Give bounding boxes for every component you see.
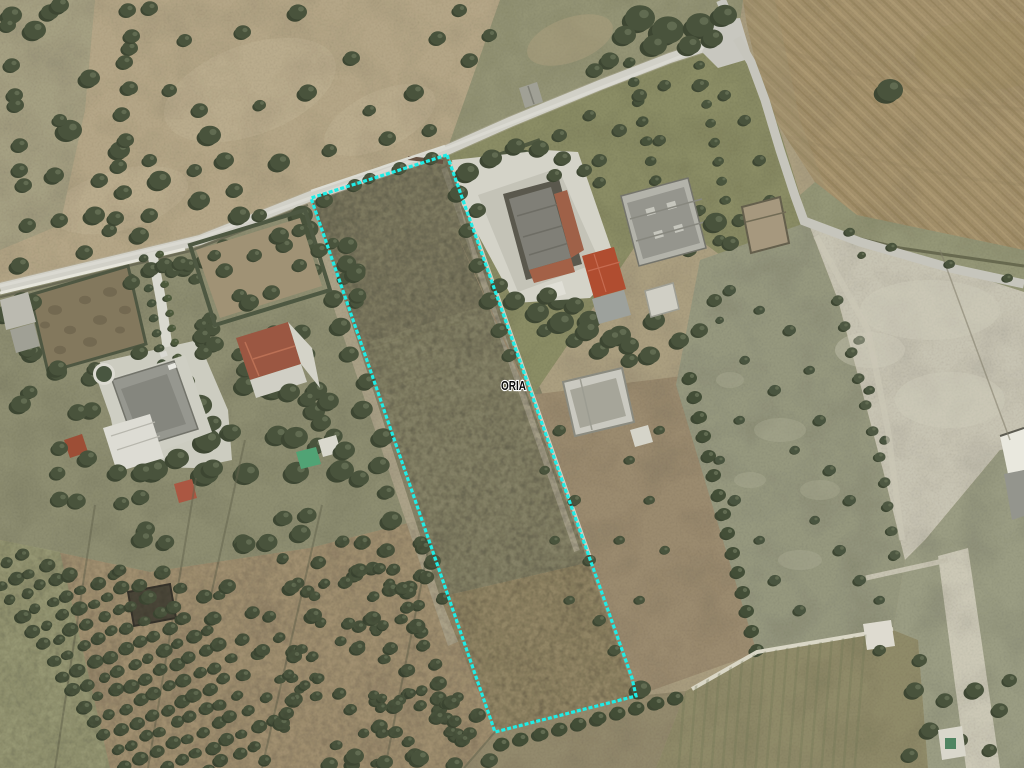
svg-text:ORIA: ORIA	[501, 378, 526, 393]
